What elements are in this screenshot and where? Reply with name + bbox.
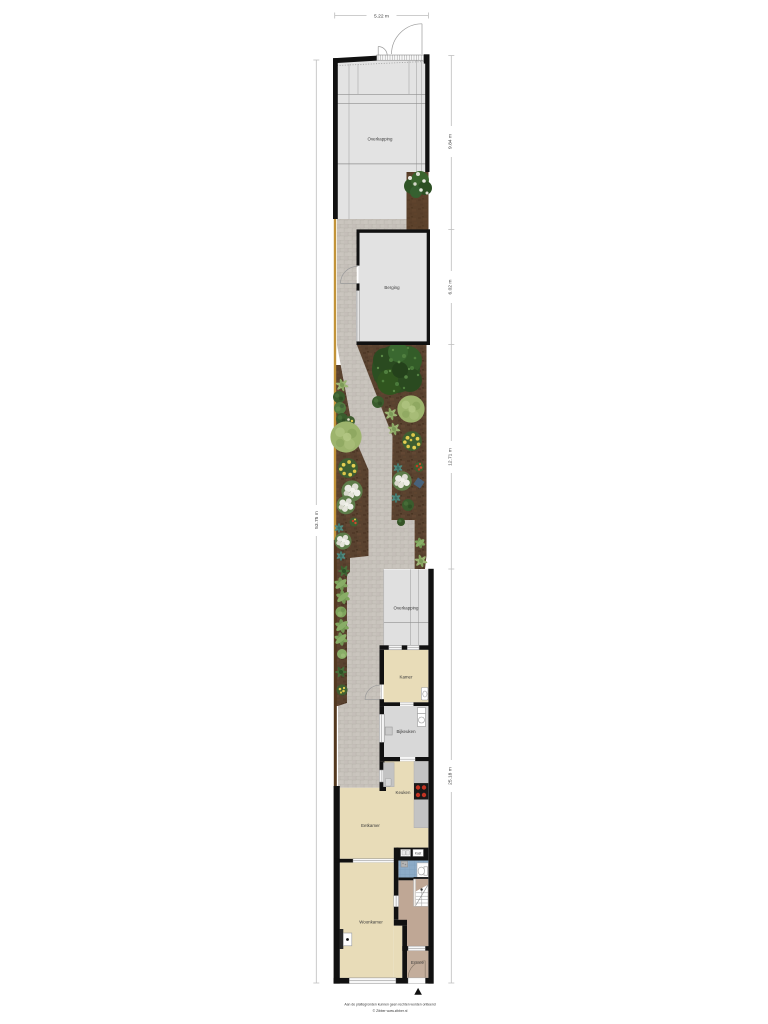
svg-text:Keuken: Keuken (396, 790, 411, 795)
svg-text:Overkapping: Overkapping (394, 606, 419, 611)
svg-text:Kast: Kast (415, 852, 421, 856)
svg-text:53.75 m: 53.75 m (314, 511, 320, 529)
svg-text:9.84 m: 9.84 m (447, 134, 453, 149)
svg-text:5.22 m: 5.22 m (374, 13, 389, 19)
svg-text:Overkapping: Overkapping (368, 137, 393, 142)
svg-text:Aan de plattegronden kunnen ge: Aan de plattegronden kunnen geen rechten… (344, 1002, 435, 1006)
svg-text:25.18 m: 25.18 m (447, 767, 453, 785)
svg-text:Berging: Berging (384, 285, 400, 290)
svg-text:Eetkamer: Eetkamer (361, 823, 380, 828)
svg-text:Kamer: Kamer (400, 675, 413, 680)
svg-text:12.71 m: 12.71 m (447, 448, 453, 466)
svg-text:Woonkamer: Woonkamer (359, 920, 383, 925)
svg-text:6.02 m: 6.02 m (447, 280, 453, 295)
svg-text:© Zibber www.zibber.nl: © Zibber www.zibber.nl (373, 1009, 408, 1013)
svg-text:Bijkeuken: Bijkeuken (396, 729, 416, 734)
